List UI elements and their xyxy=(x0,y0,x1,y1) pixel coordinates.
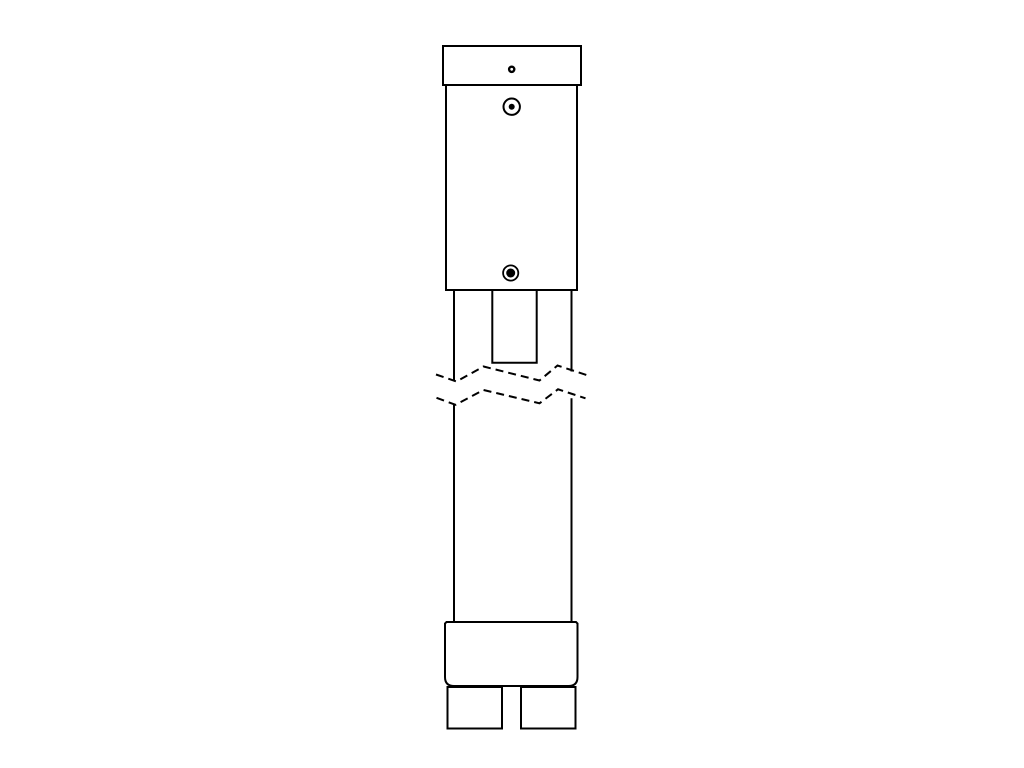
break-line-upper xyxy=(436,366,587,382)
technical-drawing-canvas xyxy=(0,0,1024,768)
left-foot xyxy=(448,687,503,729)
lower-screw-core xyxy=(506,269,515,278)
upper-port-dot xyxy=(509,104,515,110)
right-foot xyxy=(521,687,576,729)
neck-slot xyxy=(492,290,536,363)
base-block xyxy=(445,622,578,686)
top-cap xyxy=(443,46,581,85)
cap-hole xyxy=(509,67,514,72)
drawing-svg xyxy=(0,0,1024,768)
break-line-lower xyxy=(437,389,586,405)
